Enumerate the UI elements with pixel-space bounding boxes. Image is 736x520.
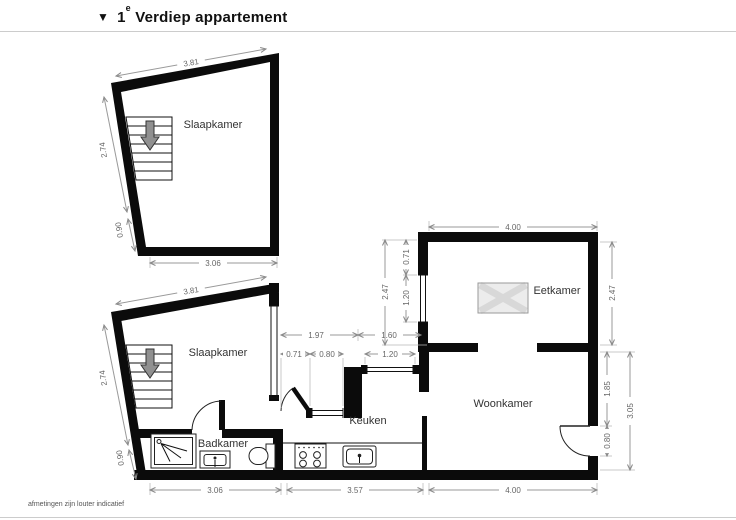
room-label-living: Woonkamer: [473, 398, 532, 410]
dim-bottom-middle: 3.57: [341, 485, 369, 495]
dim-upper-left: 2.74: [98, 141, 109, 158]
svg-text:3.81: 3.81: [183, 285, 200, 297]
dim-living-right-total: 3.05: [625, 397, 635, 425]
door-arc: [281, 388, 293, 411]
svg-text:1.85: 1.85: [603, 381, 612, 397]
door-bedroom-courtyard: [281, 388, 309, 411]
upper-plan: Slaapkamer 3.81 2.74 0.90 3.06: [98, 49, 279, 268]
dim-dining-right: 2.47: [607, 279, 617, 307]
window-kitchen-upper: [367, 365, 413, 374]
shower: [151, 434, 196, 468]
dim-bottom-right: 4.00: [499, 485, 527, 495]
svg-text:0.71: 0.71: [402, 249, 411, 265]
footer-disclaimer: afmetingen zijn louter indicatief: [28, 501, 124, 508]
dim-upper-bottom: 3.06: [199, 258, 227, 268]
svg-text:3.06: 3.06: [205, 259, 221, 268]
bottom-divider: [0, 517, 736, 518]
svg-text:0.80: 0.80: [319, 350, 335, 359]
room-label-bathroom: Badkamer: [198, 438, 248, 450]
svg-text:0.80: 0.80: [603, 433, 612, 449]
dim-left: 2.74: [98, 369, 109, 386]
svg-text:2.47: 2.47: [608, 285, 617, 301]
svg-text:2.74: 2.74: [98, 369, 109, 386]
dim-court-left: 1.97: [302, 330, 330, 340]
bathroom-sink: [200, 451, 230, 468]
door-arc: [560, 426, 590, 456]
svg-text:0.90: 0.90: [115, 449, 126, 466]
dim-kitchen-window: 1.20: [378, 349, 402, 359]
door-living-east: [560, 426, 590, 456]
toilet-bowl: [249, 448, 268, 465]
burner: [300, 452, 307, 459]
dim-top: 3.81: [176, 283, 205, 298]
burner: [314, 452, 321, 459]
dim-dining-left-total: 2.47: [380, 278, 390, 306]
lower-plan: Slaapkamer Badkamer Keuken Woonkamer Eet…: [98, 221, 635, 495]
dim-court-right: 1.60: [375, 330, 403, 340]
burner: [314, 460, 321, 467]
svg-text:1.20: 1.20: [402, 290, 411, 306]
burner: [300, 460, 307, 467]
dim-dining-left-window: 1.20: [401, 286, 411, 310]
svg-text:3.06: 3.06: [207, 486, 223, 495]
svg-text:0.71: 0.71: [286, 350, 302, 359]
svg-text:3.81: 3.81: [183, 57, 200, 69]
window-kitchen-lower: [312, 408, 343, 418]
svg-text:1.97: 1.97: [308, 331, 324, 340]
upper-walls: [111, 53, 279, 256]
toilet: [249, 444, 275, 468]
dim-living-door: 0.80: [602, 429, 612, 453]
dim-dining-top: 4.00: [499, 222, 527, 232]
svg-text:3.57: 3.57: [347, 486, 363, 495]
door-bathroom: [192, 400, 225, 430]
sink-drain: [214, 457, 217, 460]
kitchen-sink: [343, 446, 376, 467]
door-leaf: [219, 400, 225, 430]
dim-upper-left-lower: 0.90: [114, 221, 125, 238]
shower-head-icon: [157, 440, 161, 444]
dim-court-window: 0.80: [316, 349, 338, 359]
door-leaf: [293, 388, 309, 411]
dim-bottom-left: 3.06: [201, 485, 229, 495]
svg-text:2.47: 2.47: [381, 284, 390, 300]
svg-text:0.90: 0.90: [114, 221, 125, 238]
svg-text:4.00: 4.00: [505, 223, 521, 232]
svg-text:1.60: 1.60: [381, 331, 397, 340]
dim-court-door: 0.71: [283, 349, 305, 359]
window-dining-west: [418, 275, 428, 322]
window-bedroom-east: [269, 306, 279, 398]
svg-text:1.20: 1.20: [382, 350, 398, 359]
dim-left-lower: 0.90: [115, 449, 126, 466]
room-label-upper-bedroom: Slaapkamer: [184, 119, 243, 131]
sink-tap: [358, 454, 362, 458]
room-label-kitchen: Keuken: [349, 415, 386, 427]
floorplan-svg: Slaapkamer 3.81 2.74 0.90 3.06: [0, 0, 736, 520]
svg-text:3.05: 3.05: [626, 403, 635, 419]
room-label-bedroom: Slaapkamer: [189, 347, 248, 359]
room-label-dining: Eetkamer: [533, 285, 580, 297]
stove: [295, 444, 326, 468]
svg-text:4.00: 4.00: [505, 486, 521, 495]
door-arc: [192, 401, 221, 430]
svg-text:2.74: 2.74: [98, 141, 109, 158]
dining-table: [478, 283, 528, 313]
dim-dining-left-top: 0.71: [401, 245, 411, 269]
dim-living-right: 1.85: [602, 375, 612, 403]
